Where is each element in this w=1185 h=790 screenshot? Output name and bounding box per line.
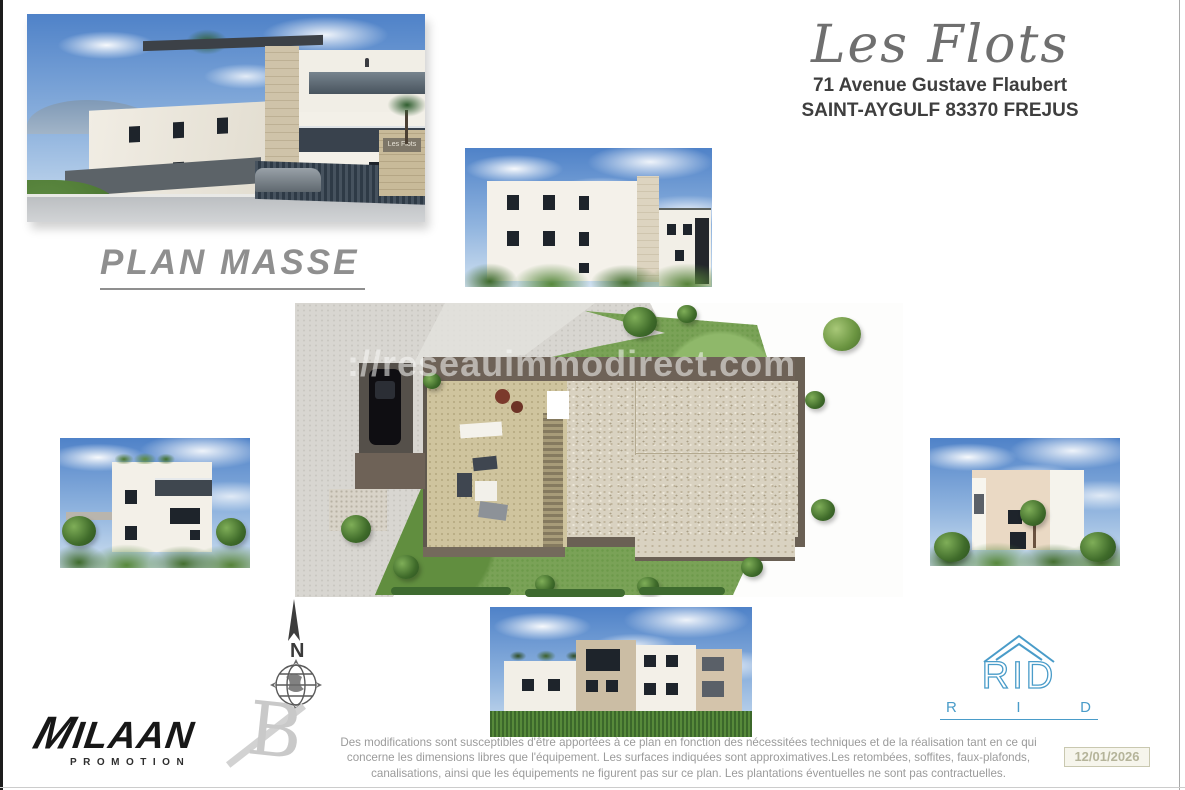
architect-logo-letter: B: [244, 691, 306, 770]
palm-tree: [379, 88, 425, 122]
window: [666, 655, 678, 667]
page-bottom-border: [0, 787, 1185, 788]
milaan-name: ILAAN: [70, 719, 196, 753]
compass-north-label: N: [290, 640, 304, 662]
window: [702, 681, 724, 697]
tree: [623, 307, 657, 337]
bistro-table: [511, 401, 523, 413]
tree: [62, 516, 96, 546]
rid-letter-d: D: [1080, 699, 1092, 716]
tree: [741, 557, 763, 577]
tree: [393, 555, 419, 579]
window: [507, 231, 519, 246]
window: [667, 224, 676, 235]
window: [579, 196, 589, 210]
elevation-view-west: [60, 438, 250, 568]
window: [644, 655, 656, 667]
window: [644, 683, 656, 695]
page-left-spine: [0, 0, 3, 790]
window: [606, 680, 618, 692]
entrance-sign: Les Flots: [383, 138, 421, 152]
balcony-band: [155, 478, 212, 496]
window: [579, 232, 589, 246]
carport-driveway: [355, 453, 425, 489]
window: [125, 490, 137, 504]
project-title: Les Flots: [770, 18, 1110, 73]
roof-level-line: [635, 453, 795, 454]
window: [190, 530, 200, 540]
tree: [1020, 500, 1046, 526]
elevation-building-block: [112, 462, 212, 552]
window: [125, 526, 137, 540]
window: [543, 231, 555, 246]
disclaimer-text: Des modifications sont susceptibles d'êt…: [325, 735, 1052, 781]
window: [170, 508, 200, 524]
date-stamp: 12/01/2026: [1064, 747, 1150, 767]
building-gravel-roof-extension: [635, 537, 795, 561]
building-gravel-roof: [563, 381, 798, 537]
hedge: [391, 587, 511, 595]
parked-car: [255, 168, 321, 192]
header-title-block: Les Flots 71 Avenue Gustave Flaubert SAI…: [770, 18, 1110, 124]
window: [173, 122, 184, 139]
rid-letter-i: I: [1016, 699, 1021, 716]
window: [702, 657, 724, 671]
roof-skylight: [547, 391, 569, 419]
plan-masse-label: PLAN MASSE: [100, 243, 359, 282]
window: [666, 683, 678, 695]
page-right-border: [1179, 0, 1180, 790]
bistro-table: [495, 389, 510, 404]
foreground-plants: [60, 540, 250, 568]
elevation-view-south: [490, 607, 752, 737]
rid-house-letters: RID: [982, 655, 1056, 692]
rid-underline: [940, 719, 1098, 720]
elevation-view-east: [930, 438, 1120, 566]
terrace-edge: [423, 547, 565, 557]
terrace-table: [460, 422, 503, 439]
roof-terrace-plants: [115, 452, 175, 464]
elevation-building-block: [576, 640, 636, 716]
tree: [934, 532, 970, 562]
site-plan-aerial-view: ://reseauimmodirect.com: [295, 303, 903, 597]
address-line-1: 71 Avenue Gustave Flaubert: [770, 73, 1110, 99]
foreground-plants: [465, 259, 712, 287]
plan-document-page: Les Flots 71 Avenue Gustave Flaubert SAI…: [0, 0, 1185, 790]
milaan-promotion-logo: M ILAAN PROMOTION: [36, 714, 221, 776]
elevation-view-north: [465, 148, 712, 287]
rid-letters-row: R I D: [946, 699, 1092, 716]
tree: [341, 515, 371, 543]
building-perspective-render: Les Flots: [27, 14, 425, 222]
person-figure: [365, 58, 369, 67]
tree: [216, 518, 246, 546]
rid-house-icon: RID: [940, 630, 1098, 692]
tree: [805, 391, 825, 409]
window: [548, 679, 560, 691]
foreground-grass: [490, 711, 752, 737]
window: [129, 126, 140, 143]
watermark-text: ://reseauimmodirect.com: [347, 343, 903, 385]
hedge: [525, 589, 625, 597]
terrace-lounger: [457, 473, 472, 497]
window: [522, 679, 534, 691]
window: [507, 195, 519, 210]
tree: [677, 305, 697, 323]
window: [586, 649, 620, 671]
milaan-subtitle: PROMOTION: [70, 757, 221, 768]
terrace-steps: [543, 413, 563, 547]
window: [543, 195, 555, 210]
elevation-building-block: [636, 645, 696, 716]
address-line-2: SAINT-AYGULF 83370 FREJUS: [770, 98, 1110, 124]
window: [974, 494, 984, 514]
elevation-building-block: [504, 661, 576, 715]
hedge: [639, 587, 725, 595]
rid-letter-r: R: [946, 699, 958, 716]
tree: [1080, 532, 1116, 562]
elevation-building-block: [696, 649, 742, 716]
terrace-mat: [475, 481, 497, 501]
window: [586, 680, 598, 692]
window: [217, 117, 228, 134]
architect-logo: B: [222, 694, 314, 786]
rid-logo: RID R I D: [940, 630, 1098, 722]
tree: [811, 499, 835, 521]
plan-masse-heading: PLAN MASSE: [100, 243, 365, 290]
window: [683, 224, 692, 235]
terrace-lounger: [472, 456, 497, 471]
roof-level-line: [635, 381, 636, 455]
